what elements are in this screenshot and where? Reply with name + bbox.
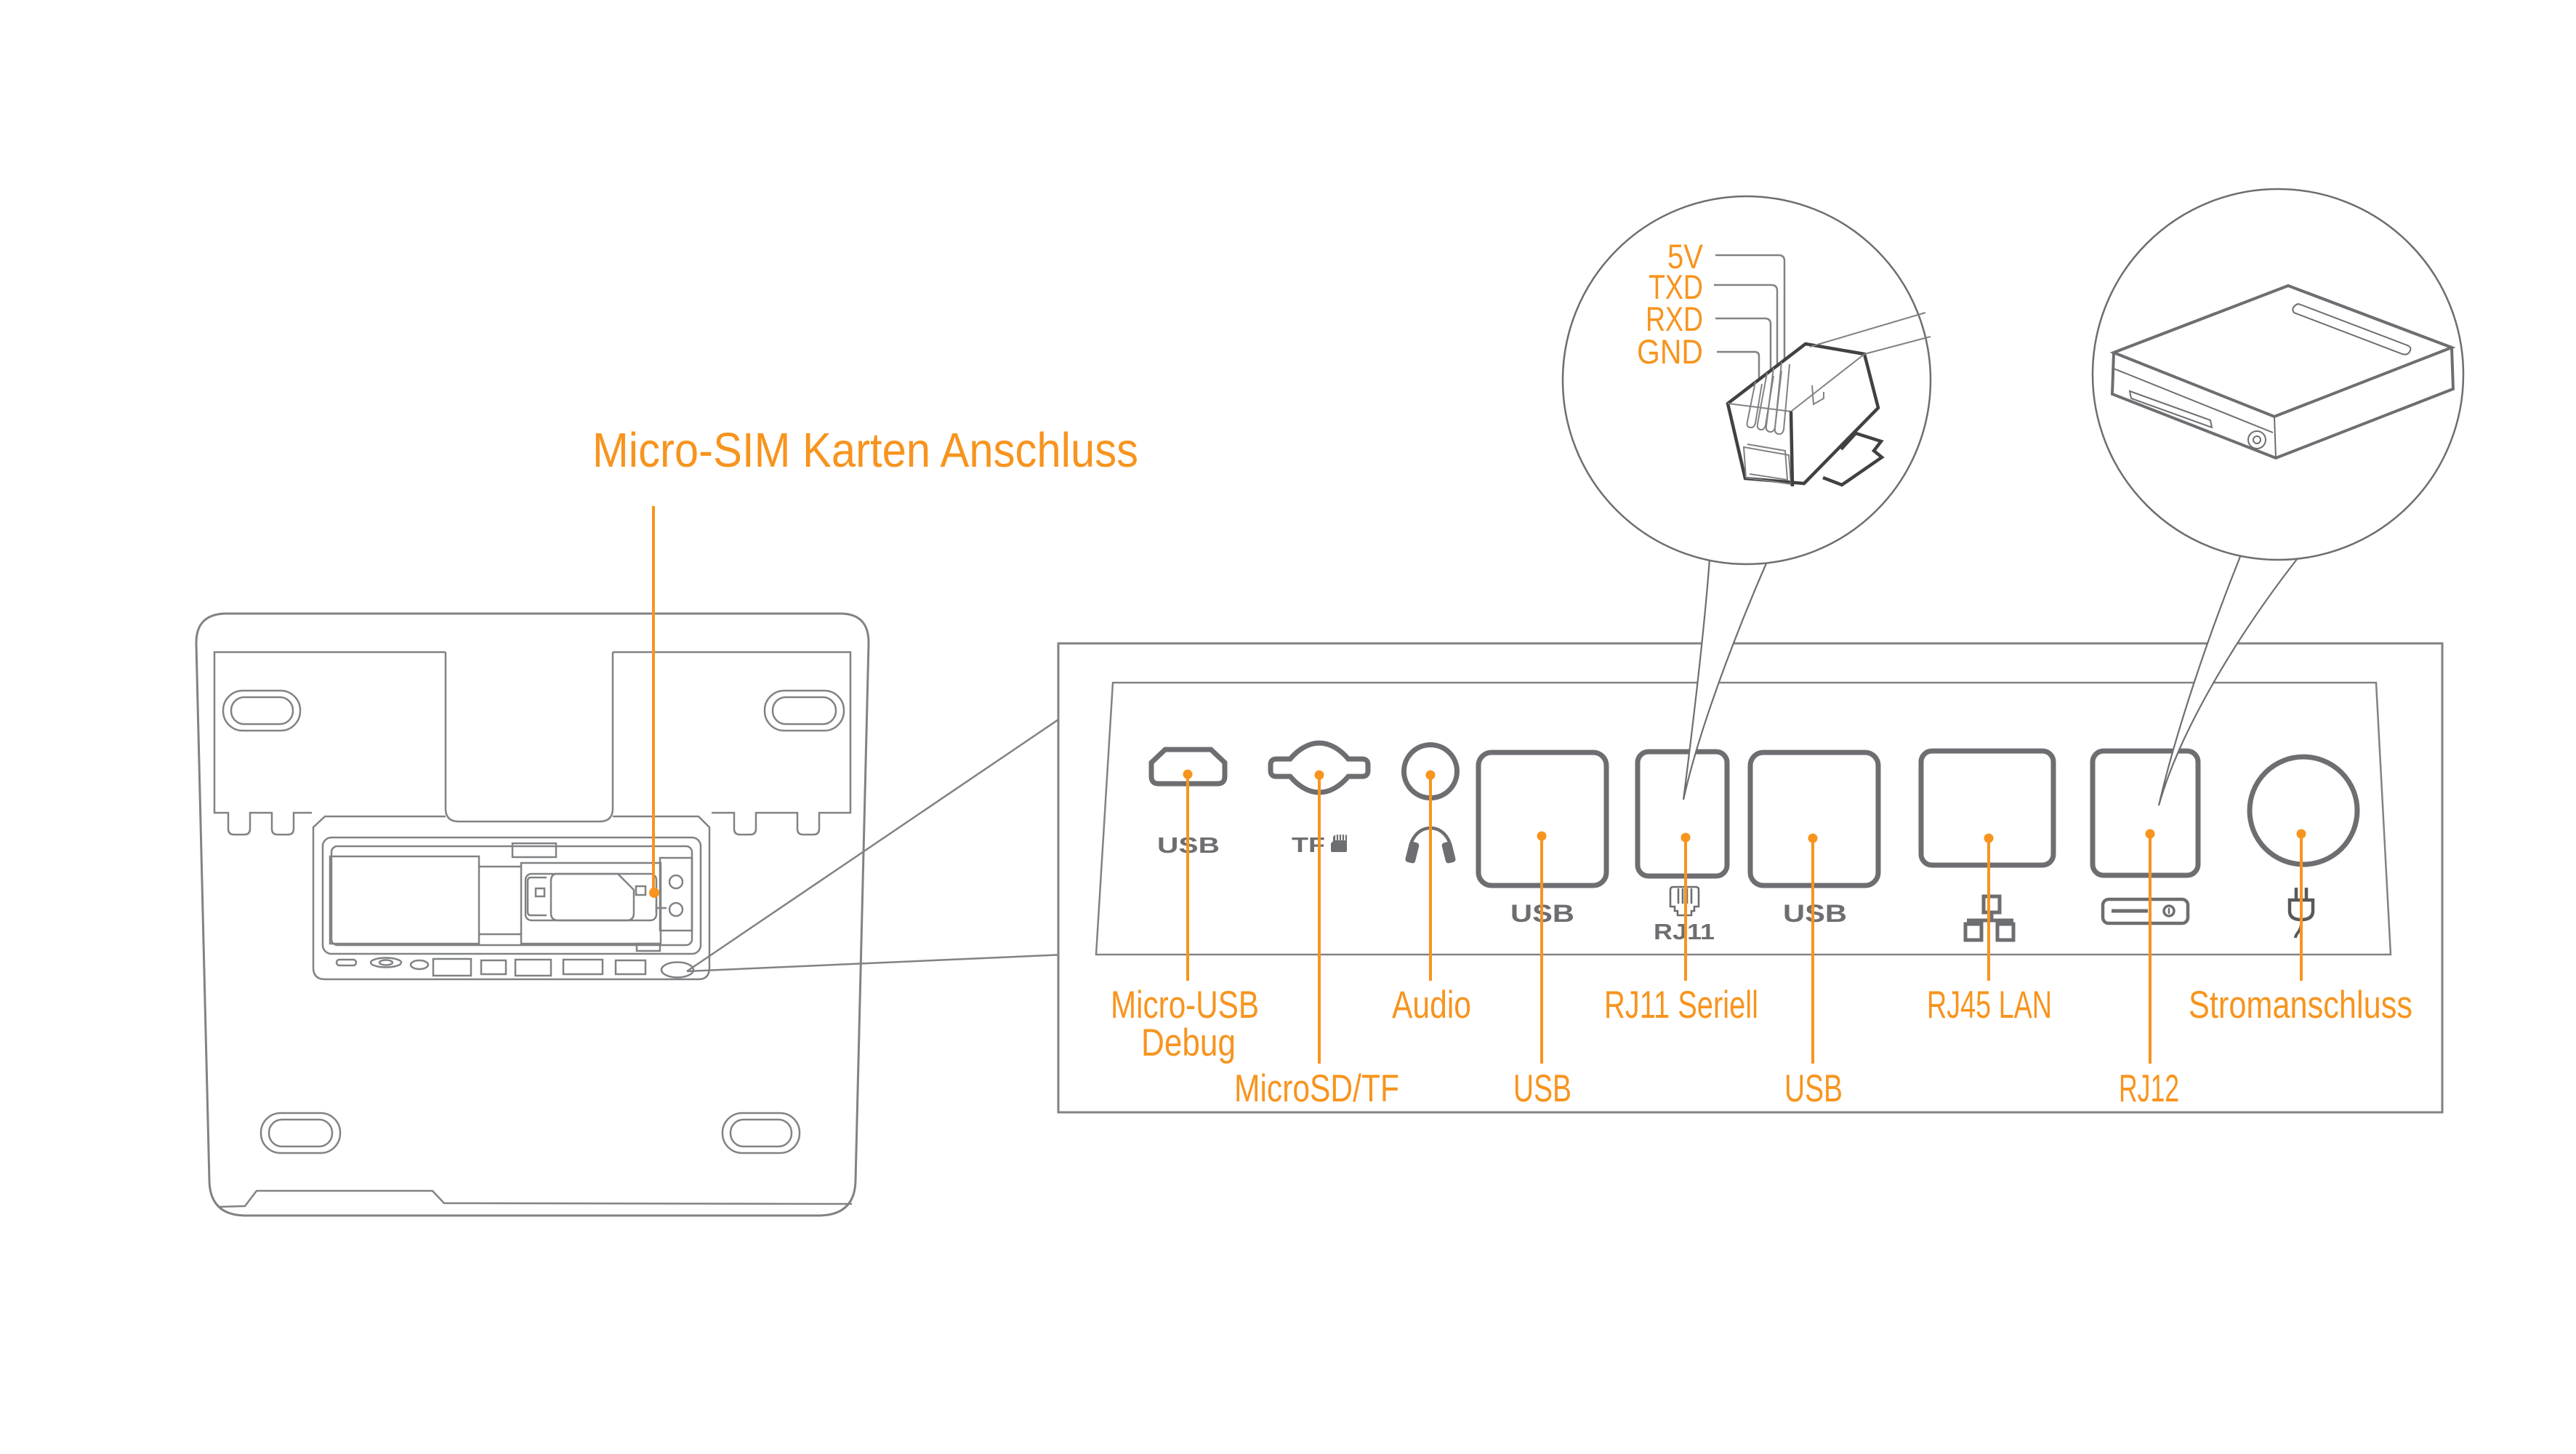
svg-text:Micro-USB: Micro-USB xyxy=(1111,984,1259,1027)
svg-text:USB: USB xyxy=(1513,1067,1571,1110)
svg-text:GND: GND xyxy=(1637,332,1703,371)
svg-text:Debug: Debug xyxy=(1141,1021,1236,1064)
svg-text:RJ12: RJ12 xyxy=(2119,1067,2179,1110)
svg-text:MicroSD/TF: MicroSD/TF xyxy=(1234,1067,1399,1110)
svg-text:USB: USB xyxy=(1784,1067,1843,1110)
svg-text:Micro-SIM Karten Anschluss: Micro-SIM Karten Anschluss xyxy=(592,423,1138,478)
svg-text:RJ11 Seriell: RJ11 Seriell xyxy=(1604,984,1758,1027)
svg-text:Audio: Audio xyxy=(1392,984,1471,1027)
svg-text:Stromanschluss: Stromanschluss xyxy=(2189,984,2412,1027)
svg-text:USB: USB xyxy=(1783,900,1847,928)
svg-text:RJ45 LAN: RJ45 LAN xyxy=(1927,984,2052,1027)
